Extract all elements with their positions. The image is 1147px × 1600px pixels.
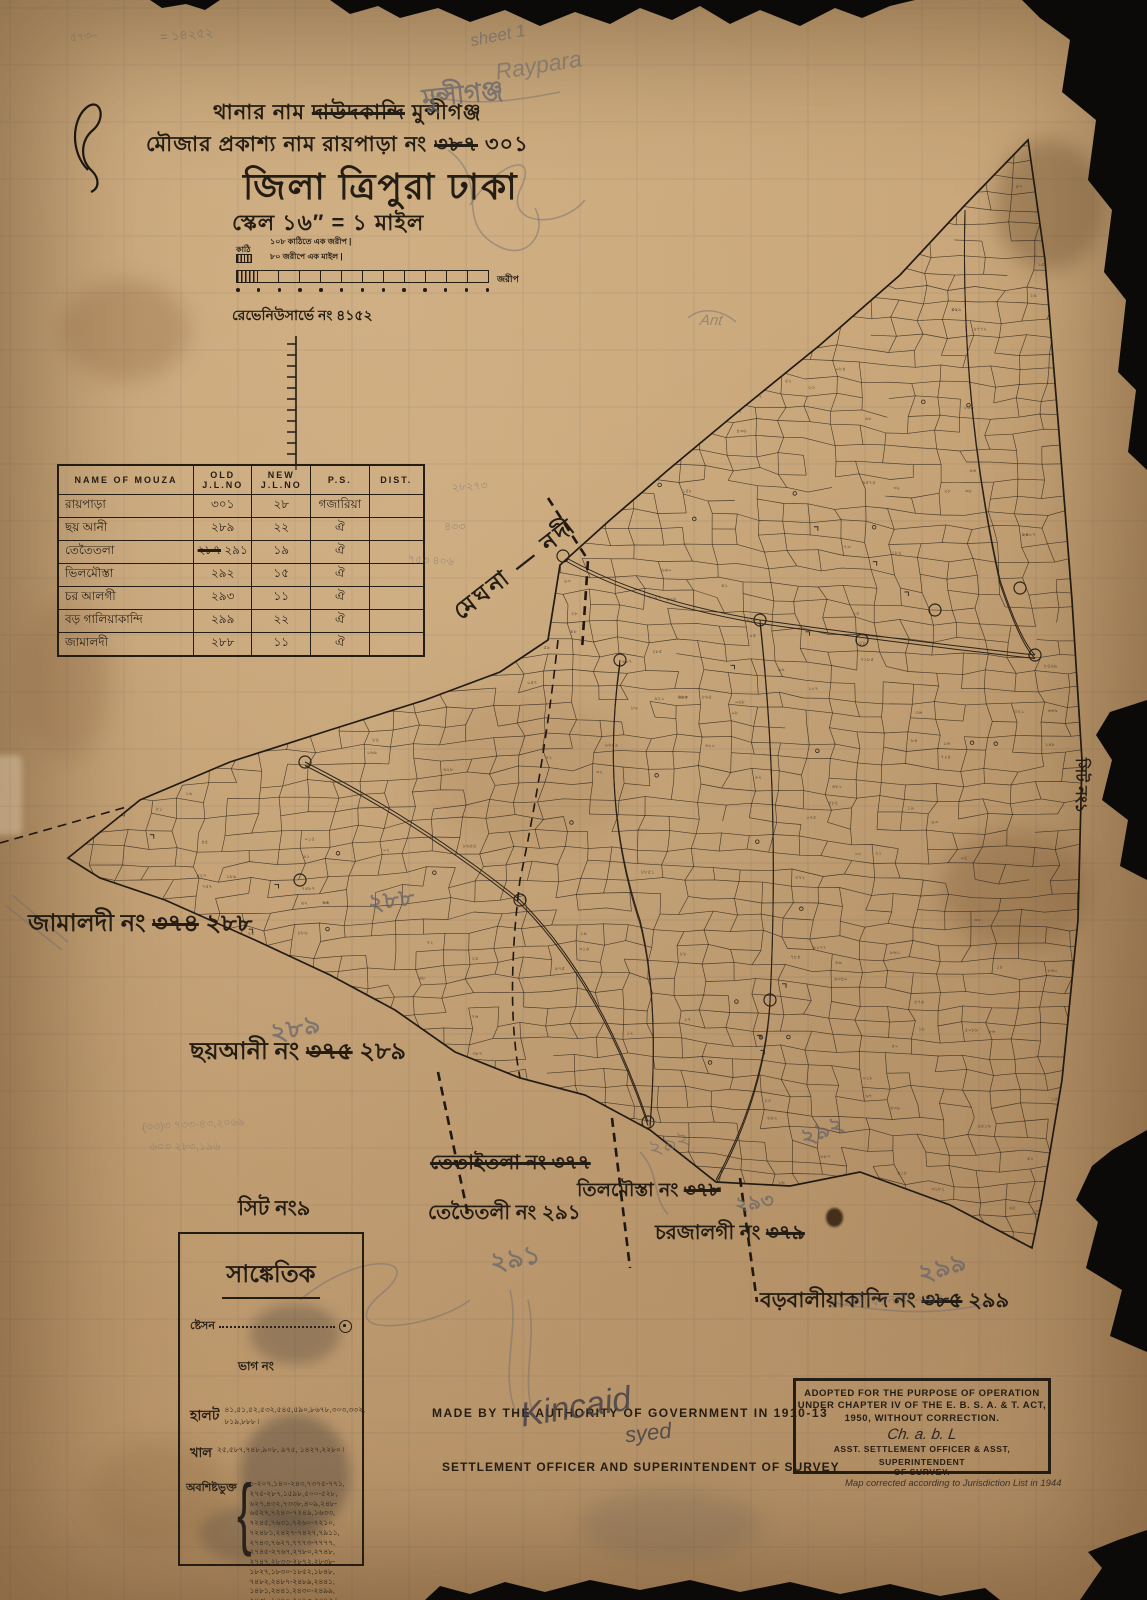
svg-text:৮৭৭১: ৮৭৭১ <box>1113 855 1126 861</box>
svg-text:৫৮২: ৫৮২ <box>1119 789 1129 795</box>
svg-text:৯৯: ৯৯ <box>778 667 785 673</box>
svg-text:৯২: ৯২ <box>270 951 277 957</box>
svg-text:৯১: ৯১ <box>732 215 739 221</box>
svg-text:৯১৭৮: ৯১৭৮ <box>1103 898 1117 904</box>
svg-text:৯৮: ৯৮ <box>865 416 872 422</box>
svg-text:৩২: ৩২ <box>893 486 900 492</box>
mouza-name: জামালদী <box>58 633 193 657</box>
svg-text:১৬: ১৬ <box>784 157 791 163</box>
svg-text:৩৮: ৩৮ <box>584 530 591 536</box>
svg-text:৭১৬৯: ৭১৬৯ <box>204 1192 217 1198</box>
adoption-stamp-box: ADOPTED FOR THE PURPOSE OF OPERATION UND… <box>793 1378 1051 1474</box>
svg-text:৭৪৯: ৭৪৯ <box>1114 260 1124 266</box>
svg-text:৫২৭: ৫২৭ <box>79 752 89 758</box>
svg-text:৪১৮: ৪১৮ <box>897 1171 908 1177</box>
mouza-name: চর আলগী <box>58 587 193 610</box>
svg-text:৮১৫: ৮১৫ <box>792 319 802 325</box>
svg-text:৯৭৫: ৯৭৫ <box>555 966 565 972</box>
svg-text:৮৫৯৯: ৮৫৯৯ <box>1044 663 1057 669</box>
svg-text:৭৮৪: ৭৮৪ <box>790 954 800 960</box>
svg-text:০৫: ০৫ <box>749 633 756 639</box>
mouza-no: ৩০১ <box>485 133 529 156</box>
svg-text:১৮: ১৮ <box>996 964 1003 970</box>
svg-text:৫৭: ৫৭ <box>1016 184 1023 190</box>
scale-mini-bar <box>236 254 252 263</box>
svg-text:৩৬৭: ৩৬৭ <box>705 408 715 414</box>
svg-text:১৬৭: ১৬৭ <box>421 426 431 432</box>
old-jl: ২৮৯ <box>193 518 252 541</box>
legend-box: সাঙ্কেতিক ষ্টেসন ভাগ নং হালট ৪১,৫১,৫২,৫৩… <box>178 1232 364 1566</box>
mouza-struck-no: ৩৮৭ <box>434 133 478 156</box>
svg-text:৮৬৪৪: ৮৬৪৪ <box>463 843 476 849</box>
svg-text:৩৬: ৩৬ <box>965 489 972 495</box>
svg-text:১৬: ১৬ <box>768 348 775 354</box>
svg-text:৭১৮৫: ৭১৮৫ <box>860 657 873 663</box>
scale-bar-ticks <box>236 288 536 292</box>
dist <box>369 495 424 518</box>
svg-text:৯৫৭৫: ৯৫৭৫ <box>862 480 875 486</box>
scale-bar-segment <box>342 270 363 283</box>
col-old-jl: OLD J.L.NO <box>193 465 252 495</box>
svg-text:৯৫৯: ৯৫৯ <box>603 371 613 377</box>
svg-text:৫০: ৫০ <box>58 964 65 970</box>
svg-text:৮১: ৮১ <box>156 807 163 813</box>
svg-text:৪৩৬: ৪৩৬ <box>736 429 747 435</box>
svg-text:৪১: ৪১ <box>1027 1156 1034 1162</box>
svg-text:৮৮: ৮৮ <box>680 952 687 958</box>
col-name: NAME OF MOUZA <box>58 465 193 495</box>
svg-text:৭৫৭: ৭৫৭ <box>202 884 212 890</box>
svg-text:৯২১: ৯২১ <box>654 696 664 702</box>
svg-text:১৫৮: ১৫৮ <box>682 489 693 495</box>
svg-text:৩২৮৯: ৩২৮৯ <box>157 436 170 442</box>
svg-text:২১১: ২১১ <box>368 1331 378 1337</box>
mouza-label: মৌজার প্রকাশ্য নাম রায়পাড়া নং <box>146 133 427 156</box>
svg-text:৮৪: ৮৪ <box>372 738 379 744</box>
svg-text:৭০২: ৭০২ <box>559 311 569 317</box>
svg-text:৭২৪: ৭২৪ <box>941 754 951 760</box>
svg-text:৫৬৮৮: ৫৬৮৮ <box>496 1292 510 1298</box>
svg-text:১২: ১২ <box>322 900 329 906</box>
col-ps: P.S. <box>311 465 370 495</box>
svg-text:৫০৮৯: ৫০৮৯ <box>965 1028 978 1034</box>
dist <box>369 633 424 657</box>
svg-text:০৮৪: ০৮৪ <box>836 367 846 373</box>
header-mouza-line: মৌজার প্রকাশ্য নাম রায়পাড়া নং ৩৮৭ ৩০১ <box>146 128 529 163</box>
svg-text:৬২: ৬২ <box>301 900 308 906</box>
district-label: জিলা <box>243 166 327 207</box>
svg-text:৮৮২: ৮৮২ <box>199 298 209 304</box>
legend-listed-row: অবশিষ্টভুক্ত { ১-২০৭,১৪০-২৪৩,৭৩৭৫-৭৭১, ২… <box>186 1479 358 1600</box>
officer-line: SETTLEMENT OFFICER AND SUPERINTENDENT OF… <box>442 1460 840 1474</box>
svg-text:২৭: ২৭ <box>684 1017 691 1023</box>
pencil-number-jamaldi: ২৮৮ <box>365 879 417 925</box>
svg-text:৩৭২: ৩৭২ <box>795 875 805 881</box>
scale-bar: জরীপ <box>236 270 536 287</box>
svg-text:৬৭১: ৬৭১ <box>436 621 446 627</box>
svg-text:১৮: ১৮ <box>426 509 433 515</box>
svg-text:৬৩৩: ৬৩৩ <box>1104 562 1115 568</box>
svg-text:৬২: ৬২ <box>297 338 304 344</box>
svg-text:২৩: ২৩ <box>764 1098 771 1104</box>
scale-bar-segment <box>405 270 426 283</box>
svg-text:০৬: ০৬ <box>1060 1225 1067 1231</box>
svg-text:০২: ০২ <box>383 848 390 854</box>
pencil-note-munshiganj: মুন্সীগঞ্জ <box>420 70 506 122</box>
svg-text:৪৮৭: ৪৮৭ <box>622 659 632 665</box>
svg-text:৩২১: ৩২১ <box>1014 709 1024 715</box>
svg-text:১৮: ১৮ <box>918 1027 925 1033</box>
svg-text:৫৯৮: ৫৯৮ <box>500 390 511 396</box>
svg-text:১৪: ১৪ <box>393 1313 400 1319</box>
old-jl: ২৯৩ <box>193 587 252 610</box>
svg-text:০৫৭: ০৫৭ <box>527 680 537 686</box>
mouza-label-tetaitola-struck: তেতাইতলা নং ৩৭৭ <box>430 1148 591 1181</box>
old-jl: ২৯২ <box>193 564 252 587</box>
pencil-note-ant: Ant <box>699 312 724 329</box>
legend-title-wrap: সাঙ্কেতিক <box>180 1256 362 1299</box>
svg-text:১০৭: ১০৭ <box>808 686 818 692</box>
ps: গজারিয়া <box>311 495 370 518</box>
scale-bar-block: ১০৮ কাঠিতে এক জরীপ | ৮০ জরীপে এক মাইল | … <box>236 236 536 328</box>
svg-text:৫০: ৫০ <box>343 434 350 440</box>
svg-text:৯৯৪৮: ৯৯৪৮ <box>282 659 296 665</box>
svg-text:৪১: ৪১ <box>721 583 728 589</box>
svg-text:৬১০: ৬১০ <box>705 743 715 749</box>
struck-number: ৩৭৮ <box>684 1180 721 1201</box>
cadastral-map-canvas: ৩৬৩৭৩৮৬১১৭৪৯২৪৩৯৮১৩৯১৩০১৮৩১৯১২৫০৩৯৯০৮১১৮… <box>0 0 1147 1600</box>
svg-text:৫৯: ৫৯ <box>543 645 550 651</box>
svg-text:৯১৭৭: ৯১৭৭ <box>813 945 826 951</box>
svg-text:৯২৬: ৯২৬ <box>729 153 740 159</box>
svg-text:৪৫: ৪৫ <box>201 839 208 845</box>
thana-struck-name: দাউদকান্দি <box>312 101 405 124</box>
new-jl: ১৫ <box>252 564 311 587</box>
svg-text:১৯: ১৯ <box>186 791 193 797</box>
new-jl: ১১ <box>252 633 311 657</box>
svg-text:৬৬৯: ৬৬৯ <box>1048 708 1058 714</box>
svg-text:৬৮৯: ৬৮৯ <box>678 695 688 701</box>
svg-text:৪০: ৪০ <box>416 670 423 676</box>
svg-text:২২৫: ২২৫ <box>774 234 784 240</box>
ps: ঐ <box>311 518 370 541</box>
svg-text:৯২১: ৯২১ <box>212 421 222 427</box>
old-jl: ৩০১ <box>193 495 252 518</box>
svg-text:৮৭০: ৮৭০ <box>131 674 141 680</box>
svg-text:০৬৮: ০৬৮ <box>735 700 746 706</box>
svg-text:৮৮৬: ৮৮৬ <box>298 930 309 936</box>
svg-text:৬০৮: ৬০৮ <box>625 183 636 189</box>
svg-text:৬৮: ৬৮ <box>419 976 426 982</box>
svg-text:৩৭: ৩৭ <box>105 663 112 669</box>
svg-text:৩৭: ৩৭ <box>806 219 813 225</box>
svg-text:১৮: ১৮ <box>880 278 887 284</box>
scale-bar-segment <box>300 270 321 283</box>
stamp-line-4: ASST. SETTLEMENT OFFICER & ASST, SUPERIN… <box>796 1443 1048 1469</box>
table-row: বড় গালিয়াকান্দি ২৯৯ ২২ ঐ <box>58 610 424 633</box>
svg-text:৩১৮১: ৩১৮১ <box>931 1187 944 1193</box>
svg-text:৮৪: ৮৪ <box>1086 631 1093 637</box>
mouza-label-tetaitoli: তেতৈতলী নং ২৯১ <box>428 1198 581 1231</box>
svg-text:৩৩: ৩৩ <box>974 917 981 923</box>
svg-text:০১৮: ০১৮ <box>863 1075 874 1081</box>
svg-text:৪২৭: ৪২৭ <box>196 873 206 879</box>
svg-text:৩৮৭: ৩৮৭ <box>472 1051 482 1057</box>
pencil-number-charjalgi: ২৯৩ <box>733 1186 775 1223</box>
svg-text:৭৩৮: ৭৩৮ <box>107 726 118 732</box>
correction-note: Map corrected according to Jurisdiction … <box>845 1478 1062 1489</box>
svg-text:১২: ১২ <box>627 1030 634 1036</box>
svg-text:৭০২৪: ৭০২৪ <box>663 328 677 334</box>
svg-text:৬৪২: ৬৪২ <box>767 1115 777 1121</box>
svg-text:৮৭: ৮৭ <box>323 337 330 343</box>
svg-text:০৮: ০৮ <box>178 1220 185 1226</box>
svg-text:৪০: ৪০ <box>892 1043 899 1049</box>
halot-values: ৪১,৫১,৫২,৫৩২,৫৪৫,৫৯০,৮৬৭৮,৩০৩,৩৩২, ৮১৯,৮… <box>224 1404 365 1428</box>
svg-text:৬৭১: ৬৭১ <box>130 1017 140 1023</box>
svg-text:০৮: ০৮ <box>1123 1315 1130 1321</box>
station-label: ষ্টেসন <box>190 1317 215 1336</box>
old-jl-struck: ২৮৭ <box>198 543 221 557</box>
stamp-signature: Ch. a. b. L <box>795 1426 1049 1443</box>
svg-text:২৮: ২৮ <box>571 611 578 617</box>
svg-text:৬৯: ৬৯ <box>835 960 842 966</box>
old-jl: ২৮৭ ২৯১ <box>193 541 252 564</box>
mouza-label-tilmousta: তিলমৌস্তা নং ৩৭৮ <box>577 1176 721 1208</box>
svg-text:৭২: ৭২ <box>427 940 434 946</box>
old-jl: ২৮৮ <box>193 633 252 657</box>
svg-text:০৫: ০৫ <box>961 855 968 861</box>
scale-bar-segment <box>279 270 300 283</box>
svg-text:৬২: ৬২ <box>1060 1225 1067 1231</box>
svg-text:৩৯: ৩৯ <box>855 1198 862 1204</box>
scale-bar-segment <box>363 270 384 283</box>
col-new-jl: NEW J.L.NO <box>252 465 311 495</box>
svg-text:৮৮৭: ৮৮৭ <box>820 1154 830 1160</box>
svg-text:১৭৪: ১৭৪ <box>1075 342 1085 348</box>
svg-text:১৭: ১৭ <box>84 148 91 154</box>
new-jl: ১৯ <box>252 541 311 564</box>
svg-text:৪৫৮: ৪৫৮ <box>446 360 457 366</box>
scanned-cadastral-map-sheet: ৩৬৩৭৩৮৬১১৭৪৯২৪৩৯৮১৩৯১৩০১৮৩১৯১২৫০৩৯৯০৮১১৮… <box>0 0 1147 1600</box>
pencil-number-tetaitoli: ২৯১ <box>487 1234 545 1286</box>
svg-text:৪১৯: ৪১৯ <box>951 307 961 313</box>
new-jl: ২৮ <box>252 495 311 518</box>
svg-text:২৫: ২৫ <box>472 956 479 962</box>
svg-text:৩১৬: ৩১৬ <box>579 947 590 953</box>
svg-text:৩১৯১: ৩১৯১ <box>297 328 310 334</box>
table-row: ভিলমৌস্তা ২৯২ ১৫ ঐ <box>58 564 424 587</box>
scale-caption-1: ১০৮ কাঠিতে এক জরীপ | <box>270 236 536 249</box>
svg-text:৪৮৫: ৪৮৫ <box>828 801 838 807</box>
thana-label: থানার নাম <box>213 101 305 124</box>
svg-text:৬১৪: ৬১৪ <box>888 1234 898 1240</box>
svg-text:৬৭: ৬৭ <box>865 1093 872 1099</box>
svg-text:২৪: ২৪ <box>341 672 348 678</box>
svg-text:৬৮১: ৬৮১ <box>832 784 842 790</box>
legend-khal-row: খাল ২৫,৫৮৭,৭৪৮,৯০৮, ৯৭৫, ১৪২৭,২২৮০ ৷ <box>190 1444 354 1465</box>
dist <box>369 610 424 633</box>
svg-text:৩৬: ৩৬ <box>915 710 922 716</box>
svg-text:৮৬: ৮৬ <box>989 1029 996 1035</box>
district-new: ঢাকা <box>448 166 518 207</box>
stamp-line-3: 1950, WITHOUT CORRECTION. <box>796 1412 1048 1426</box>
legend-halot-row: হালট ৪১,৫১,৫২,৫৩২,৫৪৫,৫৯০,৮৬৭৮,৩০৩,৩৩২, … <box>190 1404 354 1428</box>
svg-text:৯৭৭২: ৯৭৭২ <box>973 327 987 333</box>
svg-text:৪৮: ৪৮ <box>570 629 577 635</box>
ps: ঐ <box>311 587 370 610</box>
station-symbol-icon <box>339 1320 352 1333</box>
mouza-name: ভিলমৌস্তা <box>58 564 193 587</box>
svg-text:৯৬: ৯৬ <box>970 468 977 474</box>
svg-text:১৮৯: ১৮৯ <box>892 551 902 557</box>
table-header-row: NAME OF MOUZA OLD J.L.NO NEW J.L.NO P.S.… <box>58 465 424 495</box>
mouza-name: ছয় আনী <box>58 518 193 541</box>
mouza-name: রায়পাড়া <box>58 495 193 518</box>
ps: ঐ <box>311 610 370 633</box>
dist <box>369 518 424 541</box>
svg-text:৮৮: ৮৮ <box>107 1014 114 1020</box>
svg-text:১৮৯: ১৮৯ <box>226 874 236 880</box>
mouza-table: NAME OF MOUZA OLD J.L.NO NEW J.L.NO P.S.… <box>57 464 425 657</box>
mouza-label-charjalgi: চরজালগী নং ৩৭৯ <box>655 1218 805 1251</box>
new-jl: ২২ <box>252 610 311 633</box>
svg-text:০৭৫: ০৭৫ <box>806 815 816 821</box>
svg-text:১১৩: ১১৩ <box>857 191 868 197</box>
svg-text:১১: ১১ <box>1073 390 1080 396</box>
svg-text:১০২: ১০২ <box>557 357 567 363</box>
pencil-note-small: ৫৭৩– <box>69 26 99 49</box>
bhag-label: ভাগ নং <box>238 1358 362 1378</box>
svg-text:২৯: ২৯ <box>1030 293 1037 299</box>
svg-text:৮৬১: ৮৬১ <box>890 950 900 956</box>
scale-bar-segment <box>447 270 468 283</box>
scale-bar-segment <box>426 270 447 283</box>
svg-text:৯৩: ৯৩ <box>931 820 938 826</box>
svg-text:২৭: ২৭ <box>629 387 636 393</box>
legend-title: সাঙ্কেতিক <box>222 1256 319 1299</box>
svg-text:৬৬০: ৬৬০ <box>661 568 671 574</box>
khal-values: ২৫,৫৮৭,৭৪৮,৯০৮, ৯৭৫, ১৪২৭,২২৮০ ৷ <box>217 1444 344 1465</box>
struck-number: ৩৭৪ <box>152 910 199 937</box>
svg-text:৪৪১: ৪৪১ <box>656 148 666 154</box>
svg-text:৮৪: ৮৪ <box>911 738 918 744</box>
svg-text:০৬: ০৬ <box>1094 1044 1101 1050</box>
svg-text:১৯: ১৯ <box>907 805 914 811</box>
svg-text:২০৭১: ২০৭১ <box>684 357 698 363</box>
svg-text:৭৮০: ৭৮০ <box>825 303 835 309</box>
svg-text:৬৫: ৬৫ <box>106 981 113 987</box>
svg-text:৯৬৪৯: ৯৬৪৯ <box>605 743 618 749</box>
svg-text:৯১: ৯১ <box>303 854 310 860</box>
svg-text:৮৮২: ৮৮২ <box>1096 210 1106 216</box>
svg-text:৪৯: ৪৯ <box>580 152 587 158</box>
old-jl: ২৯৯ <box>193 610 252 633</box>
scale-bar-segment <box>384 270 405 283</box>
svg-text:২৩: ২৩ <box>808 385 815 391</box>
table-row: ছয় আনী ২৮৯ ২২ ঐ <box>58 518 424 541</box>
svg-text:৫০: ৫০ <box>57 432 64 438</box>
svg-text:০০৮: ০০৮ <box>182 436 193 442</box>
svg-text:৬২৮: ৬২৮ <box>443 767 454 773</box>
svg-text:৩৬: ৩৬ <box>930 1208 937 1214</box>
pencil-bottomleft-2: ৬০৩ ২৮৩,১৯৬ <box>150 1138 220 1157</box>
halot-label: হালট <box>190 1404 219 1428</box>
listed-values: ১-২০৭,১৪০-২৪৩,৭৩৭৫-৭৭১, ২৭৫-২৮৭,১৫৯৮,৫০০… <box>250 1479 345 1600</box>
svg-text:১৬: ১৬ <box>943 741 950 747</box>
svg-text:০০: ০০ <box>855 851 862 857</box>
pencil-cluster-1: ২৮২৭৩ <box>451 477 488 498</box>
listed-label: অবশিষ্টভুক্ত <box>186 1479 237 1600</box>
svg-text:৯১: ৯১ <box>1040 165 1047 171</box>
scale-bar-segment <box>236 270 258 283</box>
svg-text:৮৬৫: ৮৬৫ <box>702 695 712 701</box>
svg-text:৮৮৫১: ৮৮৫১ <box>641 870 654 876</box>
svg-text:৮১১: ৮১১ <box>313 452 323 458</box>
svg-text:৮৬: ৮৬ <box>631 706 638 712</box>
svg-text:১৯: ১৯ <box>580 931 587 937</box>
svg-text:৯৮৯: ৯৮৯ <box>320 1009 330 1015</box>
svg-text:১১: ১১ <box>495 453 502 459</box>
svg-text:১১: ১১ <box>366 1251 373 1257</box>
svg-text:১৪৮: ১৪৮ <box>1045 742 1056 748</box>
ps: ঐ <box>311 633 370 657</box>
svg-text:৭২: ৭২ <box>546 755 553 761</box>
scale-right-label: জরীপ <box>497 272 519 287</box>
svg-text:১৫৮: ১৫৮ <box>427 541 438 547</box>
svg-text:০৬৯: ০৬৯ <box>367 750 377 756</box>
svg-text:৫৭৬: ৫৭৬ <box>914 1000 925 1006</box>
svg-text:৭৬: ৭৬ <box>472 1014 479 1020</box>
ps: ঐ <box>311 541 370 564</box>
svg-text:০৫৬: ০৫৬ <box>1120 242 1131 248</box>
svg-text:৫২: ৫২ <box>785 378 792 384</box>
svg-text:২৯৩: ২৯৩ <box>1116 772 1127 778</box>
svg-text:৪৮: ৪৮ <box>239 951 246 957</box>
svg-text:২০৬: ২০৬ <box>931 1223 942 1229</box>
pencil-cluster-3: ৭৫৩ ৪০৬ <box>408 551 455 572</box>
station-dotted-line <box>219 1325 335 1328</box>
svg-text:৫৮৩: ৫৮৩ <box>798 302 809 308</box>
col-dist: DIST. <box>369 465 424 495</box>
svg-text:২১: ২১ <box>875 851 882 857</box>
svg-text:৪৩: ৪৩ <box>520 1189 527 1195</box>
svg-text:০২৫৬: ০২৫৬ <box>750 268 764 274</box>
svg-text:১৫: ১৫ <box>853 611 860 617</box>
pencil-cluster-2: ৪৩৩ <box>444 518 465 537</box>
svg-text:৪৩৯: ৪৩৯ <box>890 1106 900 1112</box>
mouza-label-jamaldi: জামালদী নং ৩৭৪ ২৮৮ <box>28 905 252 945</box>
svg-text:৬৭৬: ৬৭৬ <box>170 1172 181 1178</box>
table-row: চর আলগী ২৯৩ ১১ ঐ <box>58 587 424 610</box>
svg-text:৯৪১৬: ৯৪১৬ <box>977 1124 991 1130</box>
svg-text:৭৪৮৭: ৭৪৮৭ <box>302 886 315 892</box>
scale-bar-segment <box>468 270 489 283</box>
scale-bar-segment <box>258 270 279 283</box>
signature-handwriting-2: syed <box>624 1418 673 1449</box>
scale-caption-2: ৮০ জরীপে এক মাইল | <box>270 251 536 264</box>
revenue-survey-no: রেভেনিউসার্ভে নং ৪১৫২ <box>232 304 536 328</box>
svg-text:৯৪৬: ৯৪৬ <box>105 177 116 183</box>
khal-label: খাল <box>190 1444 212 1465</box>
svg-text:৯৯: ৯৯ <box>1121 1267 1128 1273</box>
brace-glyph: { <box>237 1475 252 1600</box>
svg-text:৮৪: ৮৪ <box>1022 532 1029 538</box>
svg-text:০১৫: ০১৫ <box>305 837 315 843</box>
mouza-name: তেতৈতলা <box>58 541 193 564</box>
table-row: রায়পাড়া ৩০১ ২৮ গজারিয়া <box>58 495 424 518</box>
scale-bar-segment <box>321 270 342 283</box>
